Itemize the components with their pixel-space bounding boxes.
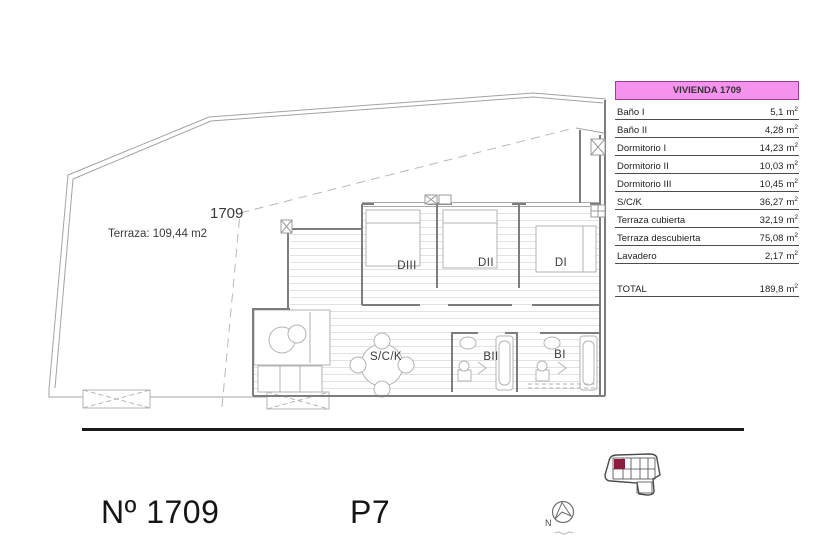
area-table-row: Baño II 4,28m2	[615, 120, 799, 138]
keyplan-highlighted-unit	[614, 459, 625, 469]
row-value: 75,08m2	[760, 232, 798, 244]
sheet-unit-number: Nº 1709	[101, 494, 219, 531]
area-table-row: Terraza cubierta 32,19m2	[615, 210, 799, 228]
row-label: Dormitorio III	[617, 179, 671, 190]
area-table-row: Baño I 5,1m2	[615, 102, 799, 120]
total-label: TOTAL	[617, 284, 647, 295]
area-table-row: Dormitorio III 10,45m2	[615, 174, 799, 192]
unit-number-plan-label: 1709	[210, 205, 243, 222]
area-table-row: S/C/K 36,27m2	[615, 192, 799, 210]
total-value: 189,8m2	[760, 283, 798, 295]
compass-n-label: N	[545, 518, 552, 528]
row-value: 5,1m2	[770, 106, 798, 118]
area-table-row: Dormitorio I 14,23m2	[615, 138, 799, 156]
row-label: Lavadero	[617, 251, 657, 262]
room-label-bano1: BI	[554, 349, 566, 361]
area-table: VIVIENDA 1709 Baño I 5,1m2 Baño II 4,28m…	[615, 81, 799, 297]
floorplan-sheet: Terraza: 109,44 m2 1709 DIII DII DI S/C/…	[0, 0, 825, 540]
row-label: Baño I	[617, 107, 644, 118]
row-label: Dormitorio II	[617, 161, 669, 172]
row-label: Baño II	[617, 125, 647, 136]
row-value: 10,03m2	[760, 160, 798, 172]
room-label-dormitorio1: DI	[555, 257, 567, 269]
north-compass-icon: N	[536, 495, 588, 540]
bed-dormitorio3	[366, 210, 420, 266]
room-label-dormitorio3: DIII	[397, 260, 417, 272]
room-label-salon-cocina: S/C/K	[370, 351, 402, 363]
row-value: 10,45m2	[760, 178, 798, 190]
building-keyplan-icon	[597, 449, 669, 499]
area-table-row: Lavadero 2,17m2	[615, 246, 799, 264]
row-value: 32,19m2	[760, 214, 798, 226]
row-value: 2,17m2	[765, 250, 798, 262]
title-separator-line	[82, 428, 744, 431]
row-label: S/C/K	[617, 197, 642, 208]
row-value: 36,27m2	[760, 196, 798, 208]
planter-box	[83, 390, 329, 409]
room-label-dormitorio2: DII	[478, 257, 494, 269]
area-table-total-row: TOTAL 189,8m2	[615, 279, 799, 297]
row-label: Dormitorio I	[617, 143, 666, 154]
area-table-header: VIVIENDA 1709	[615, 81, 799, 100]
row-value: 4,28m2	[765, 124, 798, 136]
area-table-row: Dormitorio II 10,03m2	[615, 156, 799, 174]
terrace-area-label: Terraza: 109,44 m2	[108, 228, 207, 240]
sheet-floor-label: P7	[350, 494, 390, 531]
room-label-bano2: BII	[483, 351, 498, 363]
kitchen-counter	[254, 310, 330, 392]
row-label: Terraza cubierta	[617, 215, 685, 226]
table-gap	[615, 264, 799, 279]
row-label: Terraza descubierta	[617, 233, 700, 244]
compass-scale-mark	[555, 532, 573, 534]
area-table-row: Terraza descubierta 75,08m2	[615, 228, 799, 246]
row-value: 14,23m2	[760, 142, 798, 154]
